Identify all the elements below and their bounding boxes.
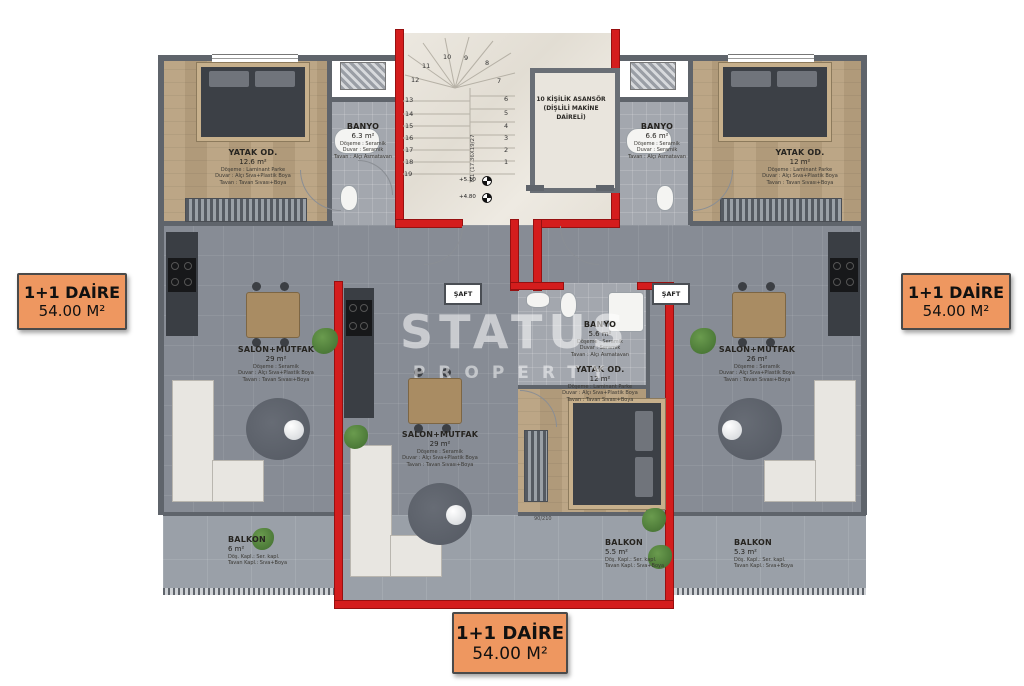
stair-step-number: 13: [405, 96, 413, 104]
shaft-box-left: ŞAFT: [444, 283, 482, 305]
dining-table-mid: [408, 378, 462, 424]
stair-step-number: 2: [504, 146, 508, 154]
wardrobe-mid-bedroom: [524, 430, 548, 502]
stair-step-number: 14: [405, 110, 413, 118]
bed-left: [196, 62, 310, 142]
stair-step-number: 8: [485, 59, 489, 67]
stair-step-number: 6: [504, 95, 508, 103]
stair-step-number: 1: [504, 158, 508, 166]
elevator-label: 10 KİŞİLİK ASANSÖR (DİŞLİLİ MAKİNE DAİRE…: [536, 95, 606, 122]
stair-step-number: 17: [405, 146, 413, 154]
room-label-salon-mid: SALON+MUTFAK 29 m² Döşeme : Seramik Duva…: [375, 430, 505, 468]
dining-table-right: [732, 292, 786, 338]
ball-icon: [446, 505, 466, 525]
shaft-box-right: ŞAFT: [652, 283, 690, 305]
stair-step-number: 12: [411, 76, 419, 84]
apartment-tag-title: 1+1 DAİRE: [903, 283, 1009, 302]
watermark-line2: PROPERTY: [400, 363, 630, 383]
stair-flight-label: M1 (17.36X19/27: [470, 134, 476, 182]
apartment-tag-bottom: 1+1 DAİRE 54.00 M²: [452, 612, 568, 674]
wall-balcony-right: [672, 512, 866, 516]
bench-right-bedroom: [720, 198, 842, 222]
door-size-label: 90/210: [534, 516, 552, 522]
bed-mid: [568, 398, 666, 510]
stove-right: [830, 258, 858, 292]
red-wall-entry-right: [534, 220, 541, 290]
stove-left: [168, 258, 196, 292]
sofa-right-chaise: [764, 460, 816, 502]
wall-bath-left-top: [330, 97, 396, 102]
chair-icon: [252, 282, 261, 291]
red-wall-mid-balcony-front: [335, 601, 673, 608]
room-label-balcony-left: BALKON 6 m² Döş. Kapl.: Ser. kapl. Tavan…: [228, 535, 328, 567]
ac-unit-left: [340, 62, 386, 90]
apartment-tag-area: 54.00 M²: [19, 302, 125, 320]
stair-step-number: 7: [497, 77, 501, 85]
level-marker-icon: [482, 176, 492, 186]
chair-icon: [738, 282, 747, 291]
stair-step-number: 10: [443, 53, 451, 61]
room-label-bathroom-left: BANYO 6.3 m² Döşeme : Seramik Duvar : Se…: [328, 122, 398, 160]
red-wall-entry-left: [511, 220, 518, 290]
shaft-label: ŞAFT: [662, 290, 681, 298]
bed-right: [718, 62, 832, 142]
apartment-tag-right: 1+1 DAİRE 54.00 M²: [901, 273, 1011, 330]
railing-balcony-right: [672, 588, 866, 595]
stair-step-number: 19: [404, 170, 412, 178]
room-label-balcony-right: BALKON 5.3 m² Döş. Kapl.: Ser. kapl. Tav…: [734, 538, 834, 570]
stair-step-number: 9: [464, 54, 468, 62]
level-marker-icon: [482, 193, 492, 203]
ac-unit-right: [630, 62, 676, 90]
watermark-line1: STATUS: [400, 305, 630, 359]
bench-left-bedroom: [185, 198, 307, 222]
room-label-bathroom-right: BANYO 6.6 m² Döşeme : Seramik Duvar : Se…: [622, 122, 692, 160]
outer-wall-right: [861, 55, 867, 515]
stair-step-number: 15: [405, 122, 413, 130]
stair-step-number: 5: [504, 109, 508, 117]
stair-step-number: 11: [422, 62, 430, 70]
red-wall-apartment-divider-left: [335, 282, 342, 608]
bathroom-right-floor: [618, 100, 690, 225]
chair-icon: [766, 282, 775, 291]
sofa-left-chaise: [212, 460, 264, 502]
apartment-tag-title: 1+1 DAİRE: [454, 623, 566, 644]
toilet-left: [340, 185, 358, 211]
apartment-tag-title: 1+1 DAİRE: [19, 283, 125, 302]
elevation-lower-label: +4.80: [459, 194, 476, 200]
wall-balcony-left: [163, 512, 338, 516]
stair-step-number: 16: [405, 134, 413, 142]
sofa-left: [172, 380, 214, 502]
ball-icon: [722, 420, 742, 440]
apartment-tag-area: 54.00 M²: [903, 302, 1009, 320]
elevator-door-jamb-right: [596, 185, 614, 191]
stair-step-number: 18: [405, 158, 413, 166]
room-label-balcony-mid: BALKON 5.5 m² Döş. Kapl.: Ser. kapl. Tav…: [605, 538, 705, 570]
room-label-salon-right: SALON+MUTFAK 26 m² Döşeme : Seramik Duva…: [692, 345, 822, 383]
stove-mid: [346, 300, 372, 336]
watermark: STATUS PROPERTY: [400, 305, 630, 383]
railing-balcony-left: [163, 588, 338, 595]
ball-icon: [284, 420, 304, 440]
apartment-tag-area: 54.00 M²: [454, 644, 566, 664]
stair-step-number: 3: [504, 134, 508, 142]
room-label-salon-left: SALON+MUTFAK 29 m² Döşeme : Seramik Duva…: [211, 345, 341, 383]
room-label-bedroom-left: YATAK OD. 12.6 m² Döşeme : Laminant Park…: [193, 148, 313, 186]
stair-step-number: 4: [504, 122, 508, 130]
wall-bath-right-top: [618, 97, 690, 102]
red-wall-mid-bath-top-left: [511, 283, 563, 289]
outer-wall-left: [158, 55, 164, 515]
toilet-right: [656, 185, 674, 211]
sofa-right: [814, 380, 856, 502]
chair-icon: [280, 282, 289, 291]
room-label-bedroom-right: YATAK OD. 12 m² Döşeme : Laminant Parke …: [740, 148, 860, 186]
elevation-upper-label: +5.10: [459, 177, 476, 183]
shaft-label: ŞAFT: [454, 290, 473, 298]
dining-table-left: [246, 292, 300, 338]
floor-plan-canvas: 1 2 3 4 5 6 7 8 9 10 11 12 13 14 15 16 1…: [0, 0, 1024, 686]
elevator-cab: [530, 68, 620, 193]
elevator-door-jamb-left: [526, 185, 544, 191]
apartment-tag-left: 1+1 DAİRE 54.00 M²: [17, 273, 127, 330]
